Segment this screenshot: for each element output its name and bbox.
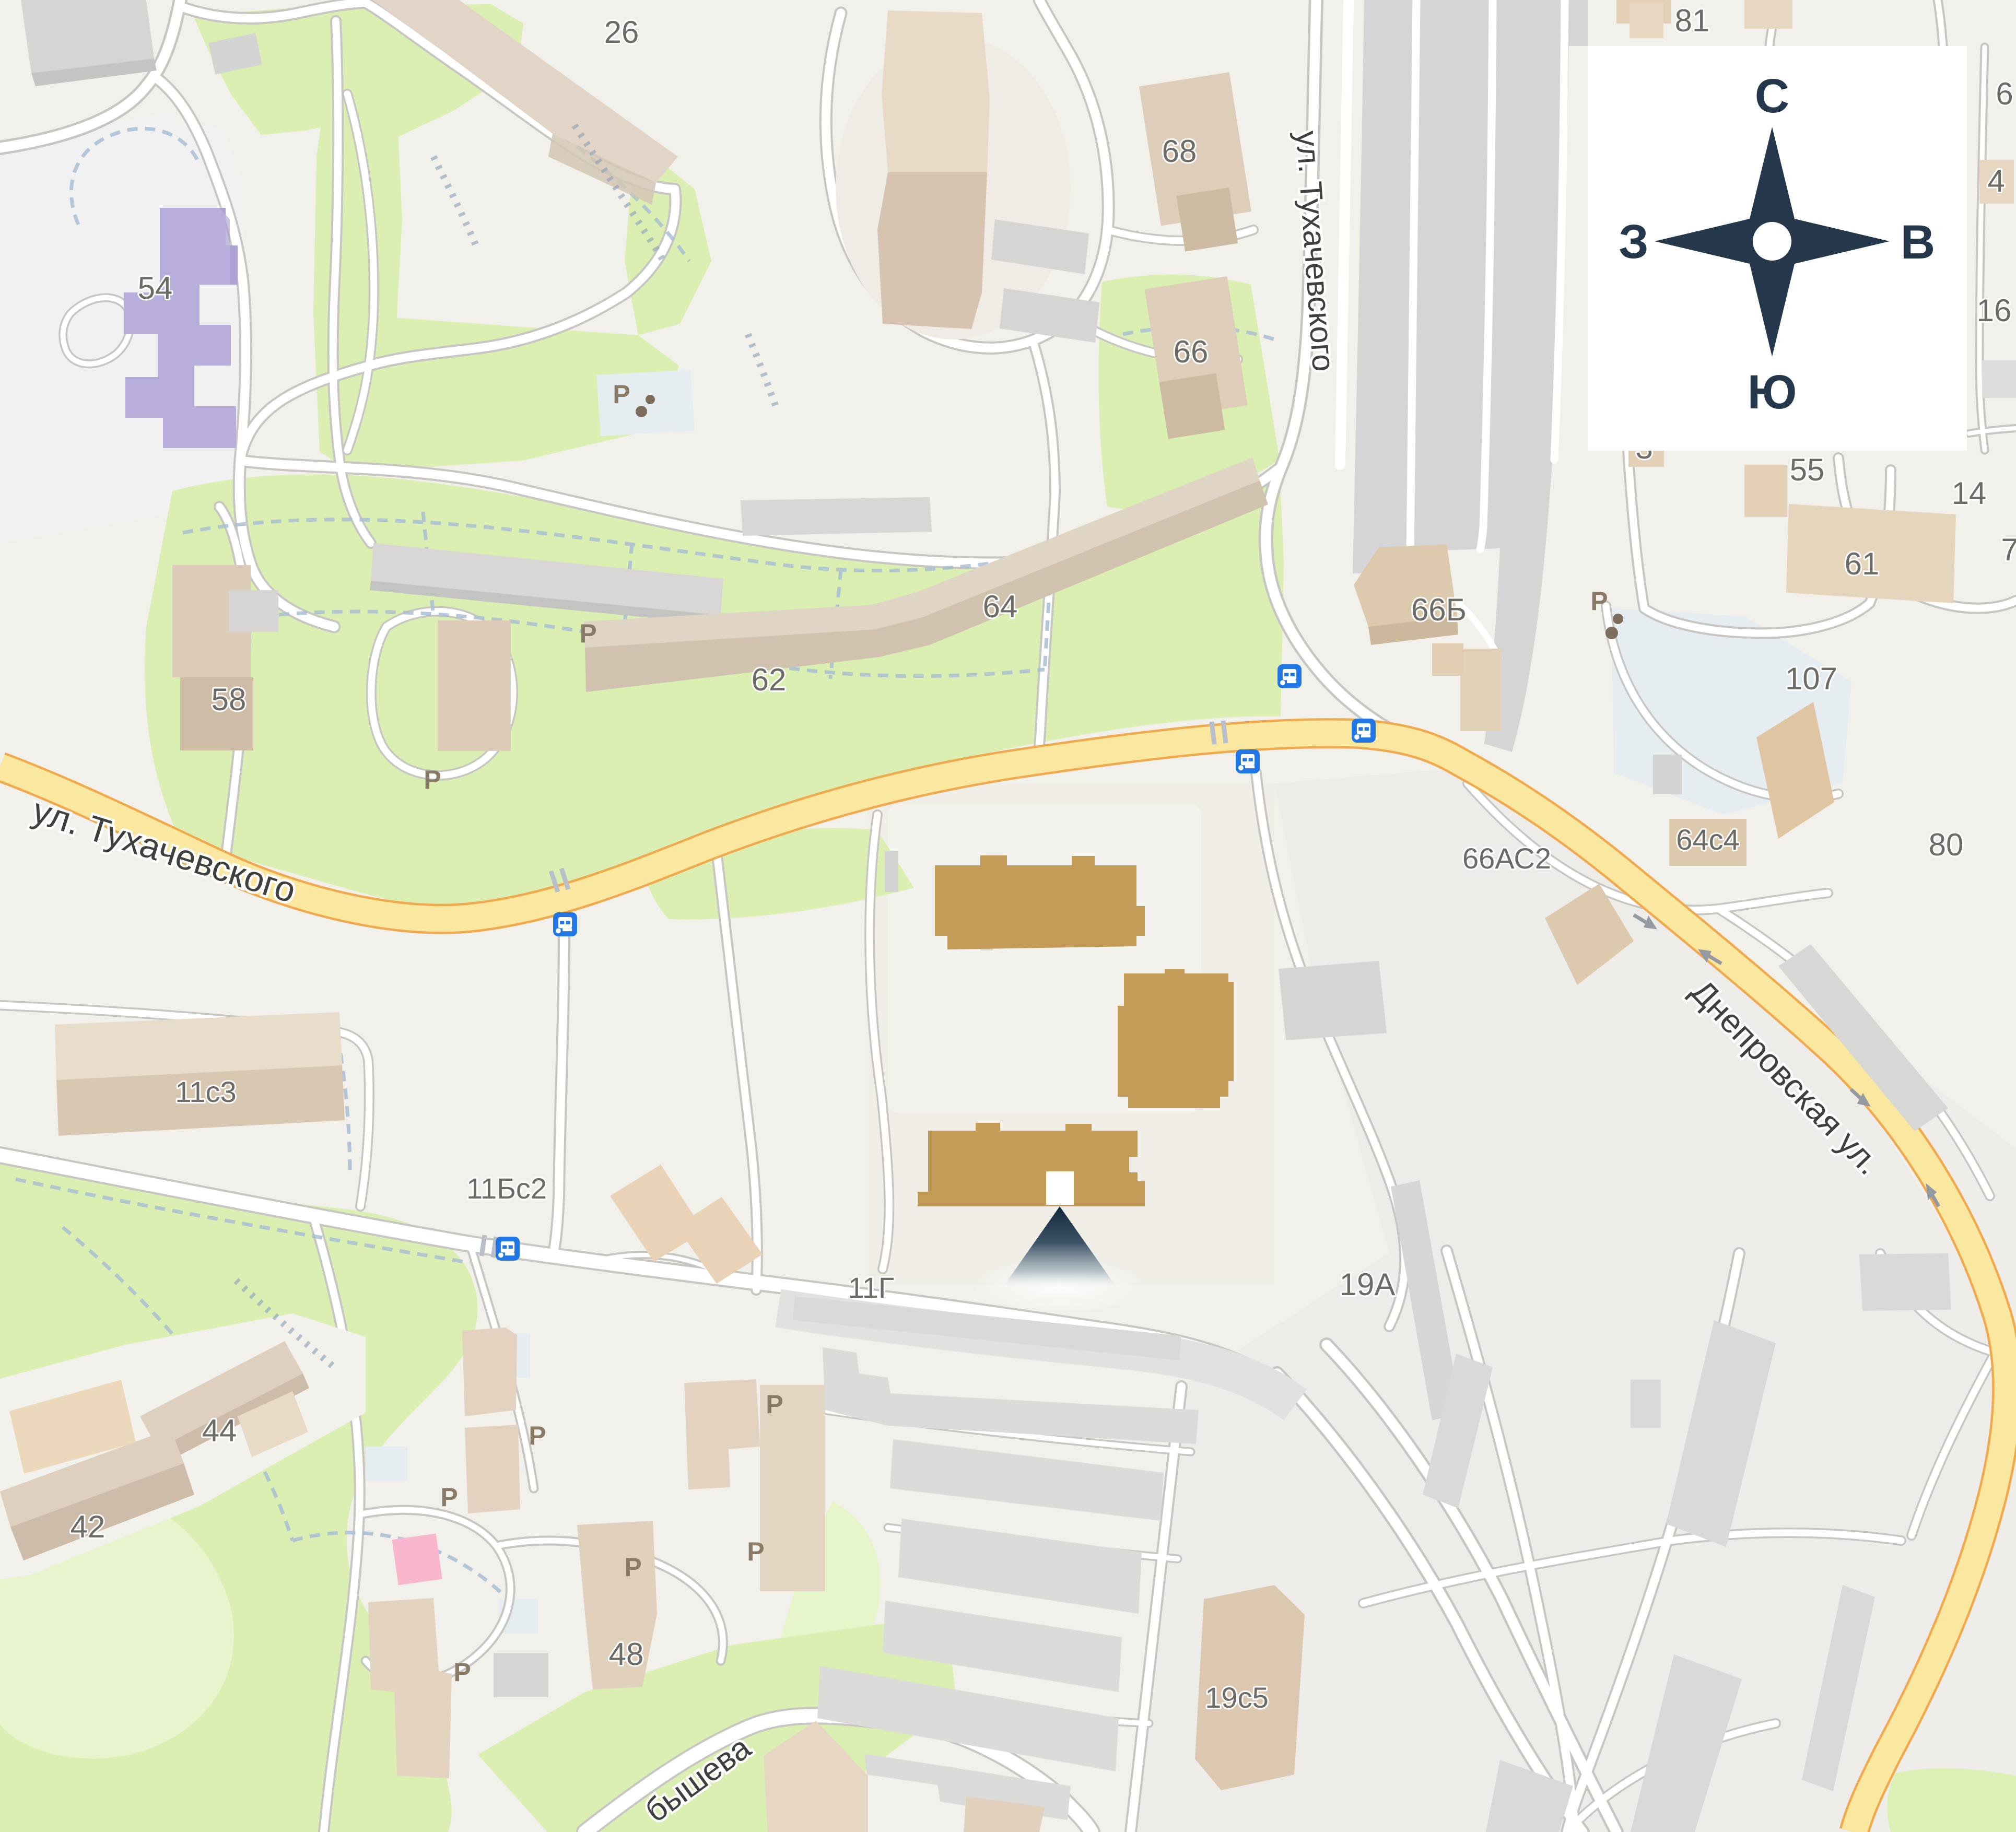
svg-text:58: 58: [212, 682, 247, 717]
svg-text:В: В: [1901, 216, 1935, 269]
svg-text:P: P: [624, 1553, 641, 1582]
svg-text:19с5: 19с5: [1205, 1681, 1268, 1714]
svg-text:54: 54: [138, 271, 173, 306]
svg-text:66: 66: [1174, 334, 1209, 369]
svg-text:С: С: [1755, 69, 1789, 123]
svg-text:14: 14: [1952, 476, 1987, 511]
svg-text:З: З: [1619, 215, 1649, 268]
svg-text:4: 4: [1987, 163, 2005, 198]
svg-text:66Б: 66Б: [1411, 592, 1467, 627]
svg-text:19А: 19А: [1340, 1267, 1396, 1302]
svg-text:66АС2: 66АС2: [1462, 842, 1551, 875]
svg-text:P: P: [579, 619, 596, 648]
svg-text:P: P: [529, 1421, 546, 1450]
svg-text:107: 107: [1785, 661, 1837, 696]
svg-text:48: 48: [609, 1637, 644, 1672]
svg-text:80: 80: [1929, 827, 1964, 862]
svg-text:Ю: Ю: [1748, 366, 1797, 419]
svg-text:61: 61: [1845, 546, 1880, 581]
svg-text:P: P: [747, 1537, 764, 1566]
svg-text:P: P: [440, 1483, 458, 1512]
svg-text:11Г: 11Г: [848, 1271, 894, 1304]
svg-text:P: P: [613, 380, 630, 409]
svg-text:81: 81: [1675, 3, 1710, 38]
svg-text:P: P: [766, 1390, 783, 1419]
svg-text:64с4: 64с4: [1676, 823, 1739, 856]
svg-text:11Бс2: 11Бс2: [466, 1172, 547, 1205]
svg-text:62: 62: [752, 662, 787, 697]
svg-text:44: 44: [202, 1413, 237, 1448]
svg-text:55: 55: [1790, 452, 1825, 487]
svg-text:P: P: [1590, 586, 1608, 616]
svg-text:P: P: [453, 1658, 471, 1687]
svg-text:P: P: [424, 765, 441, 794]
svg-text:11с3: 11с3: [175, 1075, 236, 1108]
svg-text:42: 42: [71, 1509, 106, 1544]
svg-text:7: 7: [2001, 532, 2016, 567]
svg-text:64: 64: [983, 589, 1018, 624]
svg-text:68: 68: [1162, 134, 1197, 169]
svg-text:6: 6: [1996, 76, 2013, 111]
svg-text:16: 16: [1977, 293, 2012, 328]
svg-text:26: 26: [604, 15, 639, 50]
